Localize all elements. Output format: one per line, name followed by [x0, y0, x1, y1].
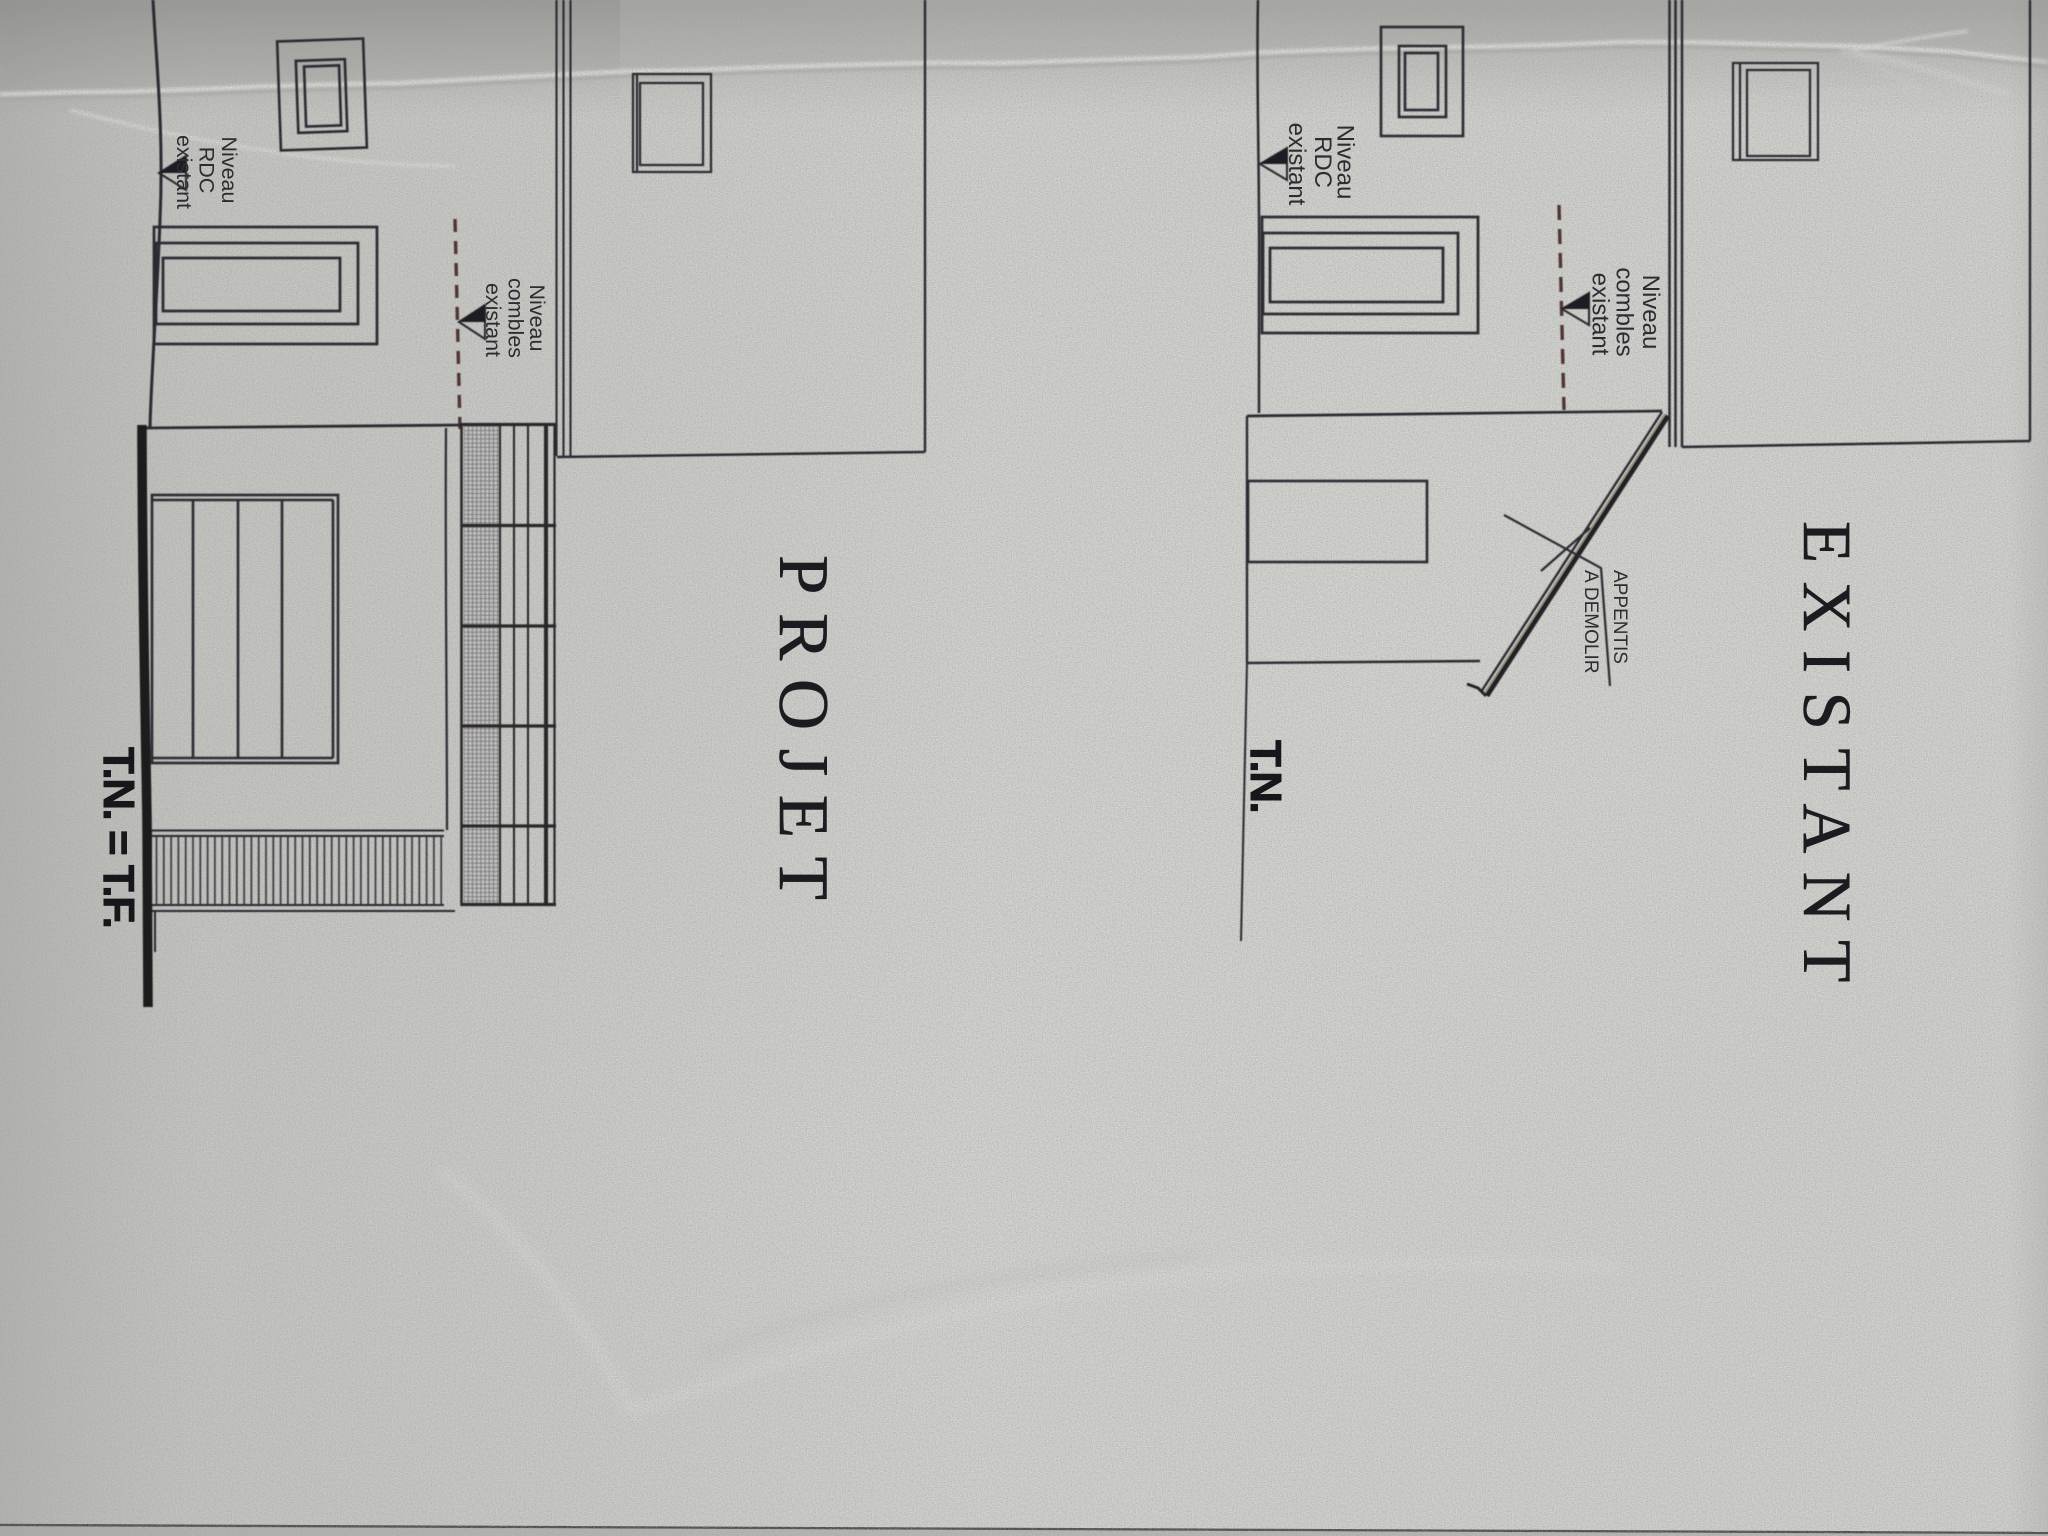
svg-text:combles: combles: [1611, 267, 1638, 356]
svg-text:EXISTANT: EXISTANT: [1789, 521, 1865, 1001]
svg-text:APPENTIS: APPENTIS: [1609, 570, 1630, 664]
svg-text:Niveau: Niveau: [525, 285, 549, 352]
svg-text:A DEMOLIR: A DEMOLIR: [1580, 570, 1601, 673]
svg-text:T.N.: T.N.: [1241, 740, 1290, 812]
svg-text:existant: existant: [481, 283, 505, 357]
svg-text:Niveau: Niveau: [217, 137, 241, 204]
svg-text:RDC: RDC: [1309, 136, 1336, 188]
svg-text:RDC: RDC: [195, 147, 219, 194]
svg-text:PROJET: PROJET: [764, 555, 842, 919]
svg-text:T.N. = T.F.: T.N. = T.F.: [94, 747, 143, 927]
svg-text:Niveau: Niveau: [1637, 275, 1664, 350]
svg-text:existant: existant: [172, 135, 196, 209]
svg-text:combles: combles: [504, 278, 528, 358]
svg-text:existant: existant: [1283, 123, 1310, 206]
svg-text:existant: existant: [1587, 273, 1614, 356]
